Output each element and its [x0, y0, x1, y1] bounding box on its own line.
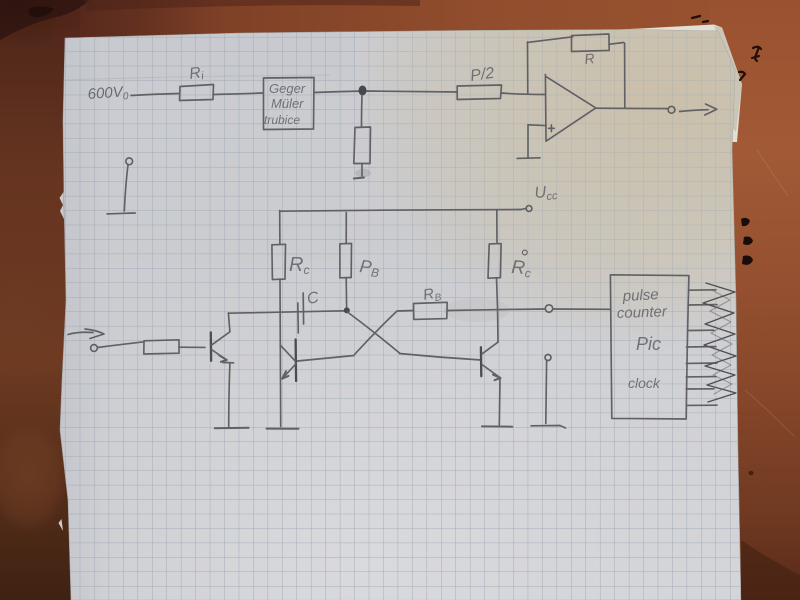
svg-text:pulse: pulse — [621, 286, 659, 305]
svg-text:trubice: trubice — [264, 113, 300, 127]
svg-text:counter: counter — [617, 303, 669, 322]
svg-text:P/2: P/2 — [469, 65, 495, 85]
svg-text:Geger: Geger — [269, 81, 306, 96]
svg-text:R: R — [584, 50, 596, 67]
svg-text:clock: clock — [628, 375, 661, 391]
svg-text:Pic: Pic — [636, 334, 661, 354]
svg-text:Müler: Müler — [271, 96, 304, 111]
